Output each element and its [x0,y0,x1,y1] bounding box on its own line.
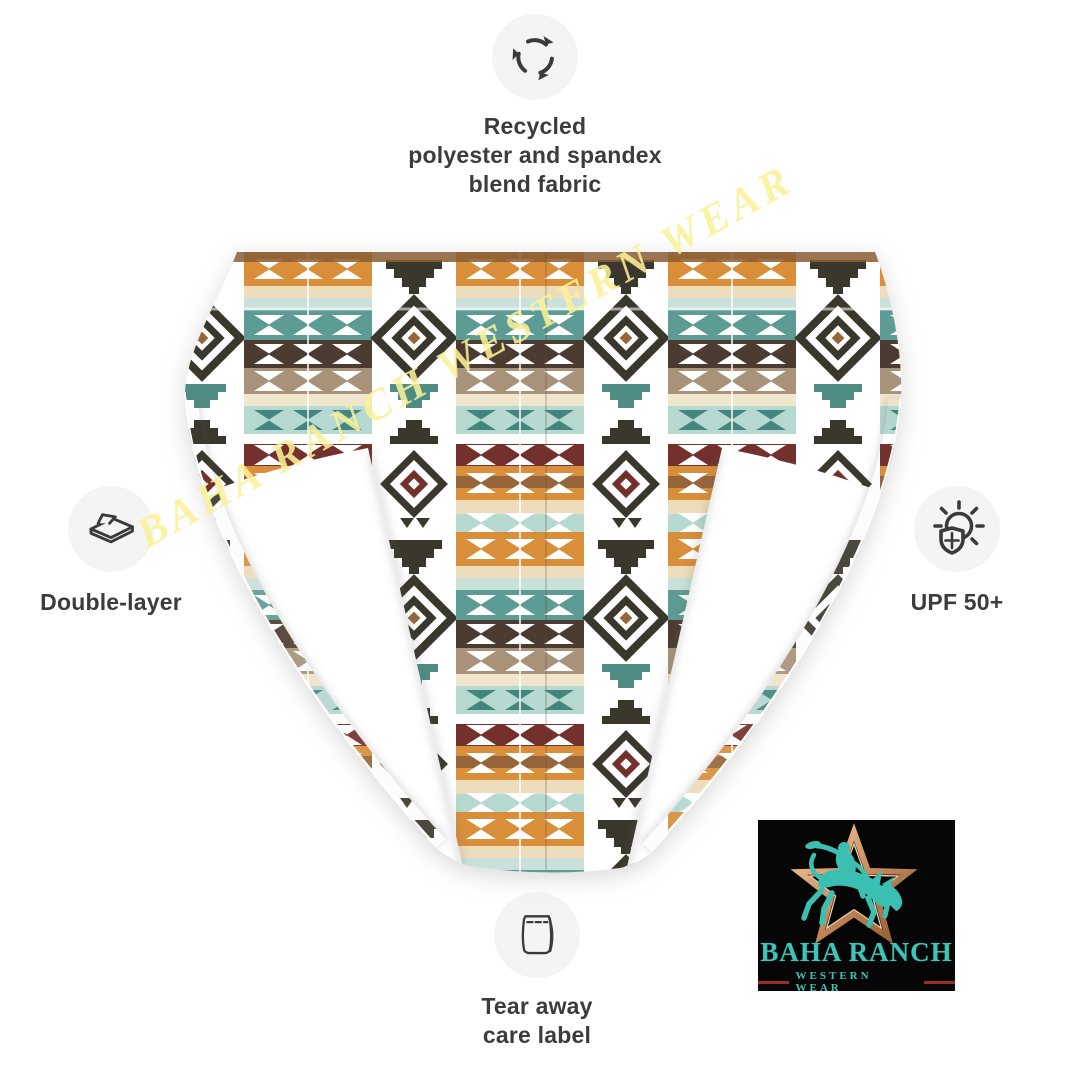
brand-logo: BAHA RANCH WESTERN WEAR [758,820,955,991]
tagline-rule-left [758,981,789,984]
brand-tagline-text: WESTERN WEAR [796,970,918,991]
brand-name: BAHA RANCH [758,939,955,966]
brand-tagline: WESTERN WEAR [758,970,955,991]
tagline-rule-right [924,981,955,984]
product-showcase: BAHA RANCH WESTERN WEAR Recycled polyest… [0,0,1080,1080]
